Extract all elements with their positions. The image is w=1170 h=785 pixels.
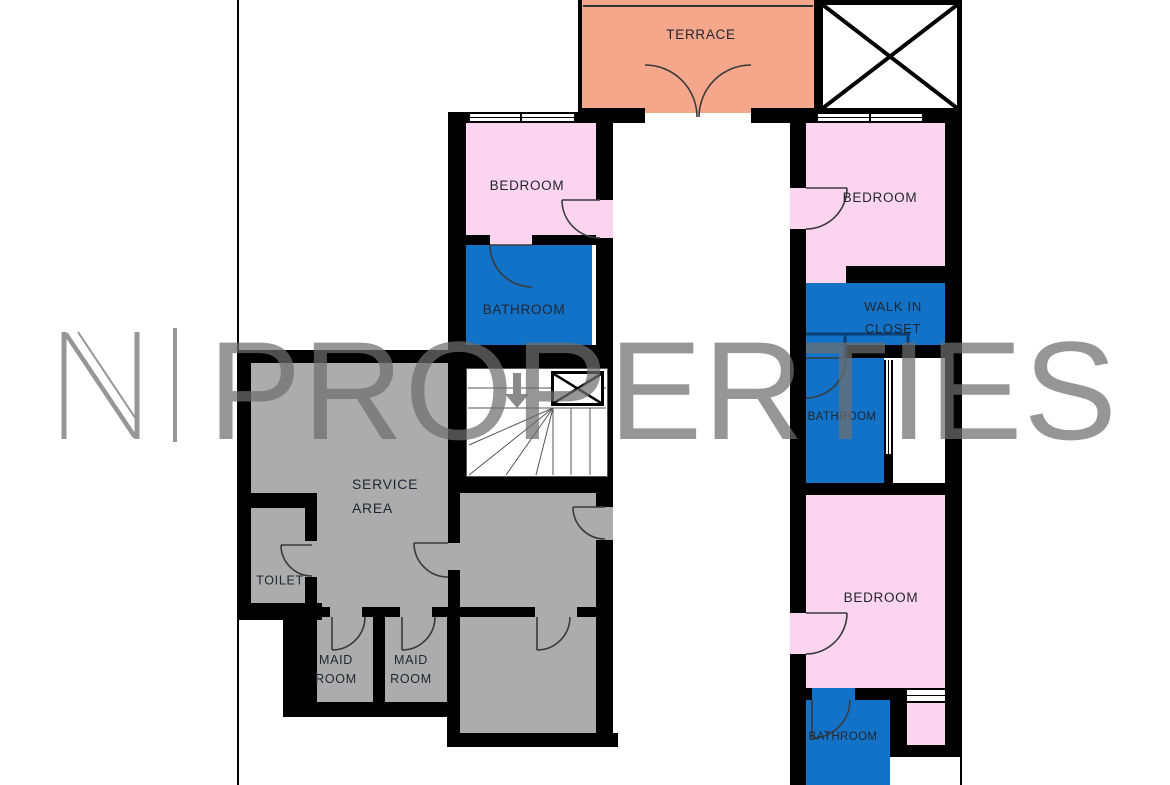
service-corridor-fill <box>460 493 596 607</box>
wall <box>577 607 596 617</box>
window <box>470 112 574 123</box>
wall <box>447 733 618 747</box>
door-gap <box>790 188 806 229</box>
wall <box>790 112 806 188</box>
room-bathroom-left-fill <box>466 245 592 345</box>
wall <box>448 235 490 245</box>
window <box>907 688 945 703</box>
bedroom-right-bottom-label: BEDROOM <box>844 587 919 609</box>
room-terrace-fill <box>582 0 814 113</box>
door-gap <box>806 345 846 358</box>
door-gap <box>812 688 855 700</box>
wall <box>578 108 645 123</box>
void-crossbox <box>818 0 962 113</box>
wall <box>448 493 460 543</box>
door-gap <box>535 607 577 617</box>
bathroom-right-bottom-label: BATHROOM <box>809 726 878 748</box>
alcove-fill <box>907 703 945 745</box>
door-gap <box>490 235 532 245</box>
wall <box>448 112 466 493</box>
wall <box>855 688 890 700</box>
staircase <box>466 368 608 477</box>
cross-icon <box>554 374 601 403</box>
window-mullion <box>869 112 871 123</box>
stairs-down-arrow-icon <box>505 373 529 408</box>
maid-room-2-label: MAIDROOM <box>390 651 432 689</box>
wall <box>790 229 806 613</box>
door-gap <box>448 543 460 570</box>
wall <box>373 617 385 702</box>
wall <box>447 607 460 747</box>
service-store-room-fill <box>460 617 596 733</box>
wall <box>790 654 806 785</box>
walk-in-closet-label: WALK INCLOSET <box>864 296 922 340</box>
wall <box>448 570 460 607</box>
door-gap <box>400 607 432 617</box>
door-gap <box>790 613 806 654</box>
terrace-label: TERRACE <box>666 24 735 46</box>
wall <box>790 483 962 495</box>
wall <box>884 452 893 483</box>
door-gap <box>596 507 613 540</box>
window-mullion <box>520 112 522 123</box>
wall <box>596 540 613 747</box>
cross-icon <box>823 5 957 108</box>
bedroom-left-label: BEDROOM <box>490 175 565 197</box>
wall <box>960 757 962 785</box>
floor-plan: TERRACE BEDROOM BATHROOM BEDROOM WALK IN… <box>0 0 1170 785</box>
wall <box>460 607 535 617</box>
wall <box>245 493 305 508</box>
window <box>884 360 893 454</box>
wall <box>596 112 613 200</box>
wall <box>790 688 812 700</box>
door-gap <box>596 200 613 238</box>
wall <box>448 345 613 370</box>
maid-room-1-label: MAIDROOM <box>315 651 357 689</box>
stair-void-crossbox <box>551 371 604 406</box>
wall <box>317 607 330 617</box>
wall <box>237 350 251 620</box>
bathroom-right-top-label: BATHROOM <box>808 406 877 428</box>
bathroom-left-label: BATHROOM <box>483 299 566 321</box>
bedroom-right-top-label: BEDROOM <box>843 187 918 209</box>
wall <box>362 607 400 617</box>
brand-n-logo-icon <box>55 322 255 447</box>
wall <box>945 112 962 757</box>
toilet-label: TOILET <box>256 572 304 591</box>
door-gap <box>330 607 362 617</box>
wall <box>287 702 460 717</box>
wall <box>583 5 813 7</box>
wall <box>578 0 582 118</box>
service-area-label: SERVICEAREA <box>352 472 418 520</box>
wall <box>448 477 613 493</box>
door-gap <box>806 266 846 283</box>
wall <box>305 493 317 541</box>
wall <box>237 350 453 363</box>
